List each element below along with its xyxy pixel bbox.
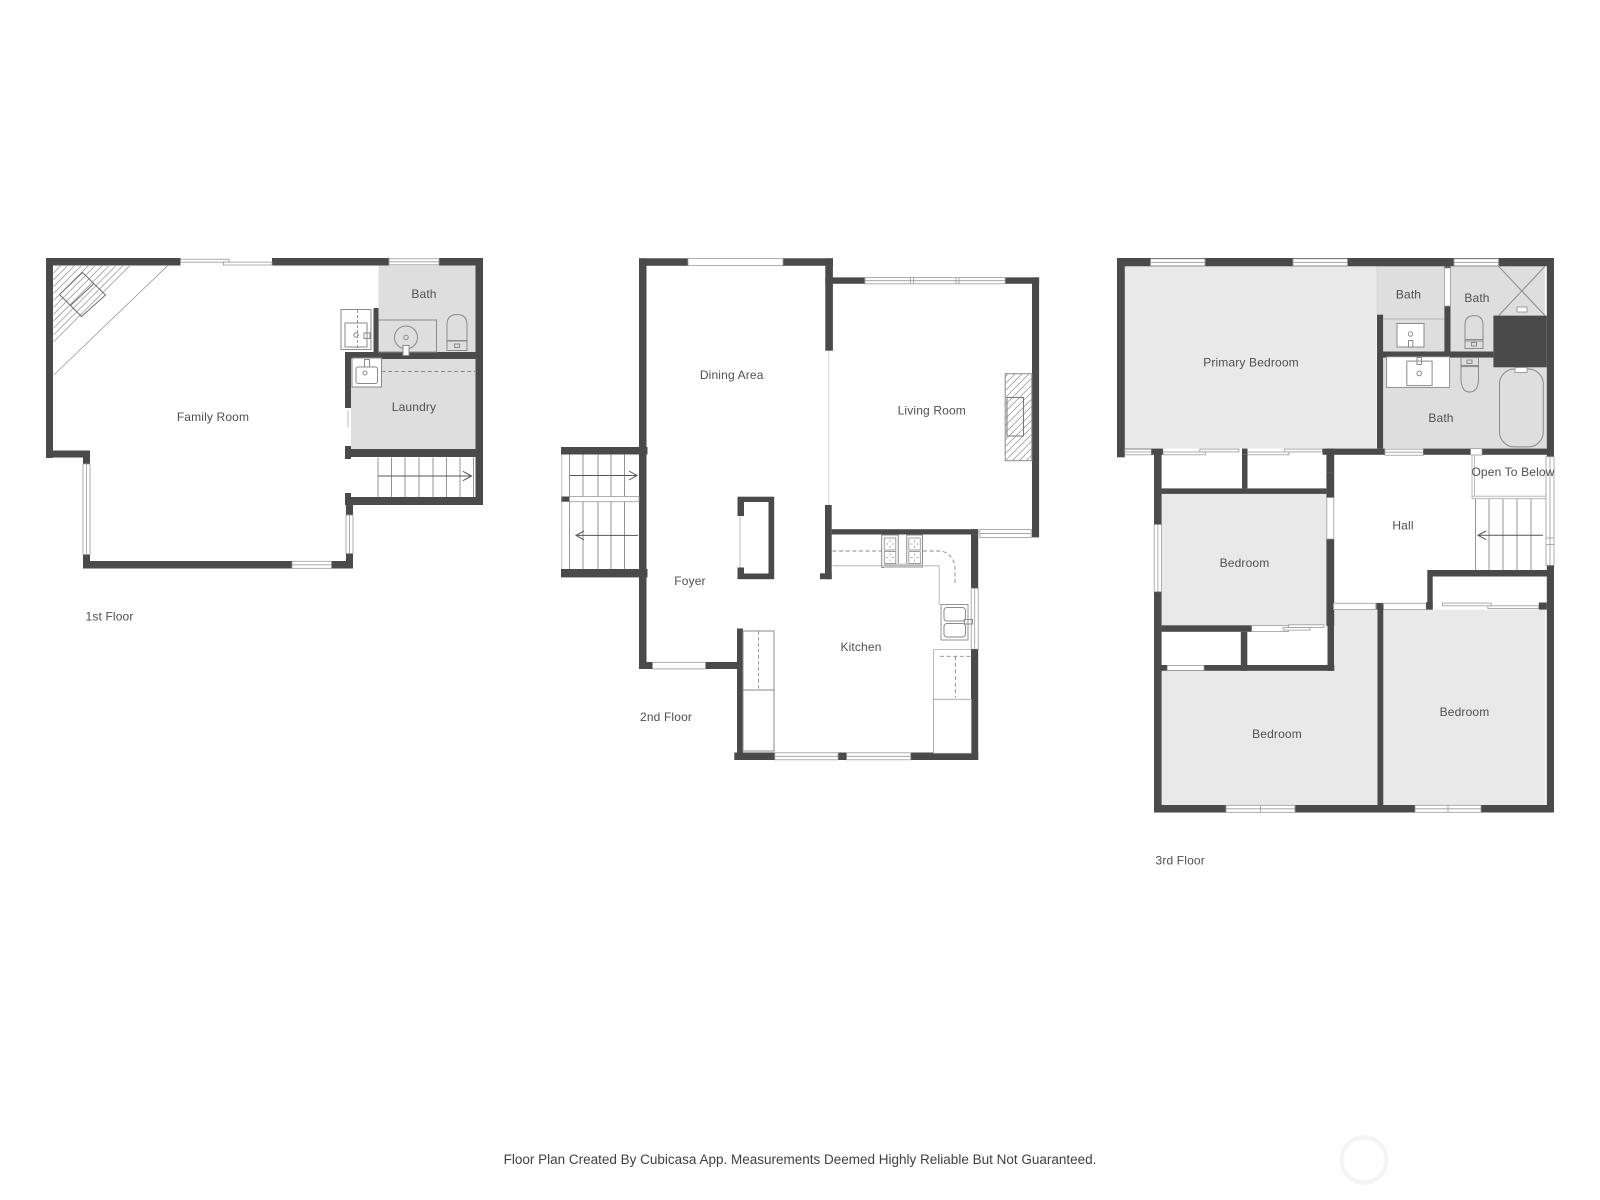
svg-text:Family Room: Family Room bbox=[177, 410, 249, 424]
svg-text:Bath: Bath bbox=[1464, 291, 1489, 305]
svg-text:Bath: Bath bbox=[1396, 288, 1421, 302]
svg-text:Bath: Bath bbox=[1428, 411, 1453, 425]
svg-text:Floor Plan Created By Cubicasa: Floor Plan Created By Cubicasa App. Meas… bbox=[504, 1152, 1097, 1167]
svg-text:3rd Floor: 3rd Floor bbox=[1156, 854, 1205, 868]
svg-text:Bedroom: Bedroom bbox=[1220, 556, 1270, 570]
svg-text:Bedroom: Bedroom bbox=[1252, 727, 1302, 741]
svg-text:Open To Below: Open To Below bbox=[1471, 465, 1554, 479]
svg-text:Living Room: Living Room bbox=[898, 404, 966, 418]
svg-text:Primary Bedroom: Primary Bedroom bbox=[1203, 356, 1299, 370]
svg-text:Hall: Hall bbox=[1392, 519, 1413, 533]
svg-text:Dining Area: Dining Area bbox=[700, 368, 764, 382]
svg-text:Bedroom: Bedroom bbox=[1440, 705, 1490, 719]
svg-text:Bath: Bath bbox=[411, 287, 436, 301]
svg-text:Kitchen: Kitchen bbox=[840, 640, 881, 654]
svg-text:2nd Floor: 2nd Floor bbox=[640, 710, 692, 724]
svg-text:Laundry: Laundry bbox=[392, 400, 436, 414]
svg-text:1st Floor: 1st Floor bbox=[86, 610, 134, 624]
svg-text:Foyer: Foyer bbox=[674, 574, 705, 588]
